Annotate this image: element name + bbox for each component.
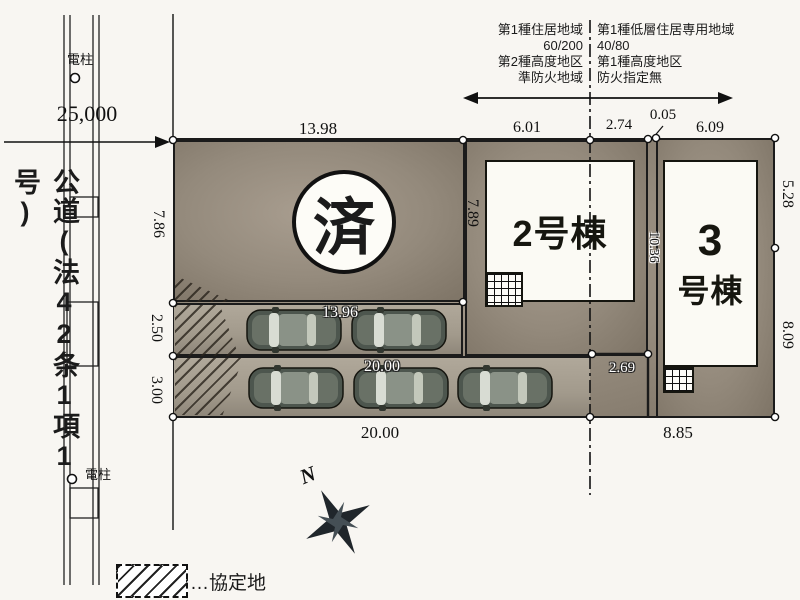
building-2-label: 2号棟	[512, 205, 607, 257]
dim-b3-right-upper: 5.28	[779, 174, 795, 214]
dim-gap: 0.05	[640, 108, 686, 123]
dim-sold-top: 13.98	[268, 120, 368, 137]
road-name-label: 公道(法42条1項1号)	[6, 168, 84, 498]
car	[456, 365, 554, 411]
dim-b3-right-lower: 8.09	[779, 315, 795, 355]
building-3-suffix: 号棟	[677, 266, 743, 312]
zoning-right-line: 第1種低層住居専用地域	[597, 22, 797, 38]
zoning-right-line: 第1種高度地区	[597, 54, 797, 70]
dim-row1: 13.96	[295, 305, 385, 321]
zoning-left-line: 準防火地域	[395, 70, 583, 86]
dim-sold-right: 7.89	[464, 193, 480, 233]
zoning-left-column: 第1種住居地域 60/200 第2種高度地区 準防火地域	[395, 22, 583, 86]
zoning-left-line: 第1種住居地域	[395, 22, 583, 38]
utility-pole-top-symbol	[71, 74, 80, 83]
north-label: N	[290, 460, 326, 491]
dim-b3-bottom: 8.85	[633, 424, 723, 441]
dim-strip1-left: 2.50	[148, 308, 164, 348]
dim-b2-top-right: 2.74	[594, 118, 644, 133]
dim-b2-bottom: 2.69	[592, 361, 652, 376]
building-3-number: 3	[698, 216, 723, 266]
zoning-right-line: 防火指定無	[597, 70, 797, 86]
dim-between-lots: 10.36	[646, 223, 660, 271]
building-3: 3 号棟	[663, 160, 758, 367]
legend-label: …協定地	[190, 568, 266, 595]
zoning-extent-arrow	[463, 92, 733, 104]
sold-stamp-text: 済	[313, 177, 375, 267]
road-width-dim: 25,000	[42, 103, 132, 125]
road-dim-arrow	[4, 136, 170, 148]
dim-bottom: 20.00	[335, 424, 425, 441]
site-plan: 2号棟 3 号棟 済	[0, 0, 800, 600]
zoning-left-line: 第2種高度地区	[395, 54, 583, 70]
zoning-left-line: 60/200	[395, 38, 583, 54]
zoning-right-line: 40/80	[597, 38, 797, 54]
legend-hatch-swatch	[116, 564, 188, 598]
car	[247, 365, 345, 411]
building-2-terrace	[485, 272, 523, 307]
utility-pole-top-label: 電柱	[58, 53, 102, 66]
zoning-right-column: 第1種低層住居専用地域 40/80 第1種高度地区 防火指定無	[597, 22, 797, 86]
dim-b3-top: 6.09	[685, 120, 735, 136]
dim-b2-top-left: 6.01	[492, 120, 562, 136]
building-3-terrace	[663, 367, 694, 393]
dim-sold-left: 7.86	[150, 204, 166, 244]
dim-strip2-left: 3.00	[148, 370, 164, 410]
dim-row2: 20.00	[337, 359, 427, 375]
sold-stamp: 済	[292, 170, 396, 274]
